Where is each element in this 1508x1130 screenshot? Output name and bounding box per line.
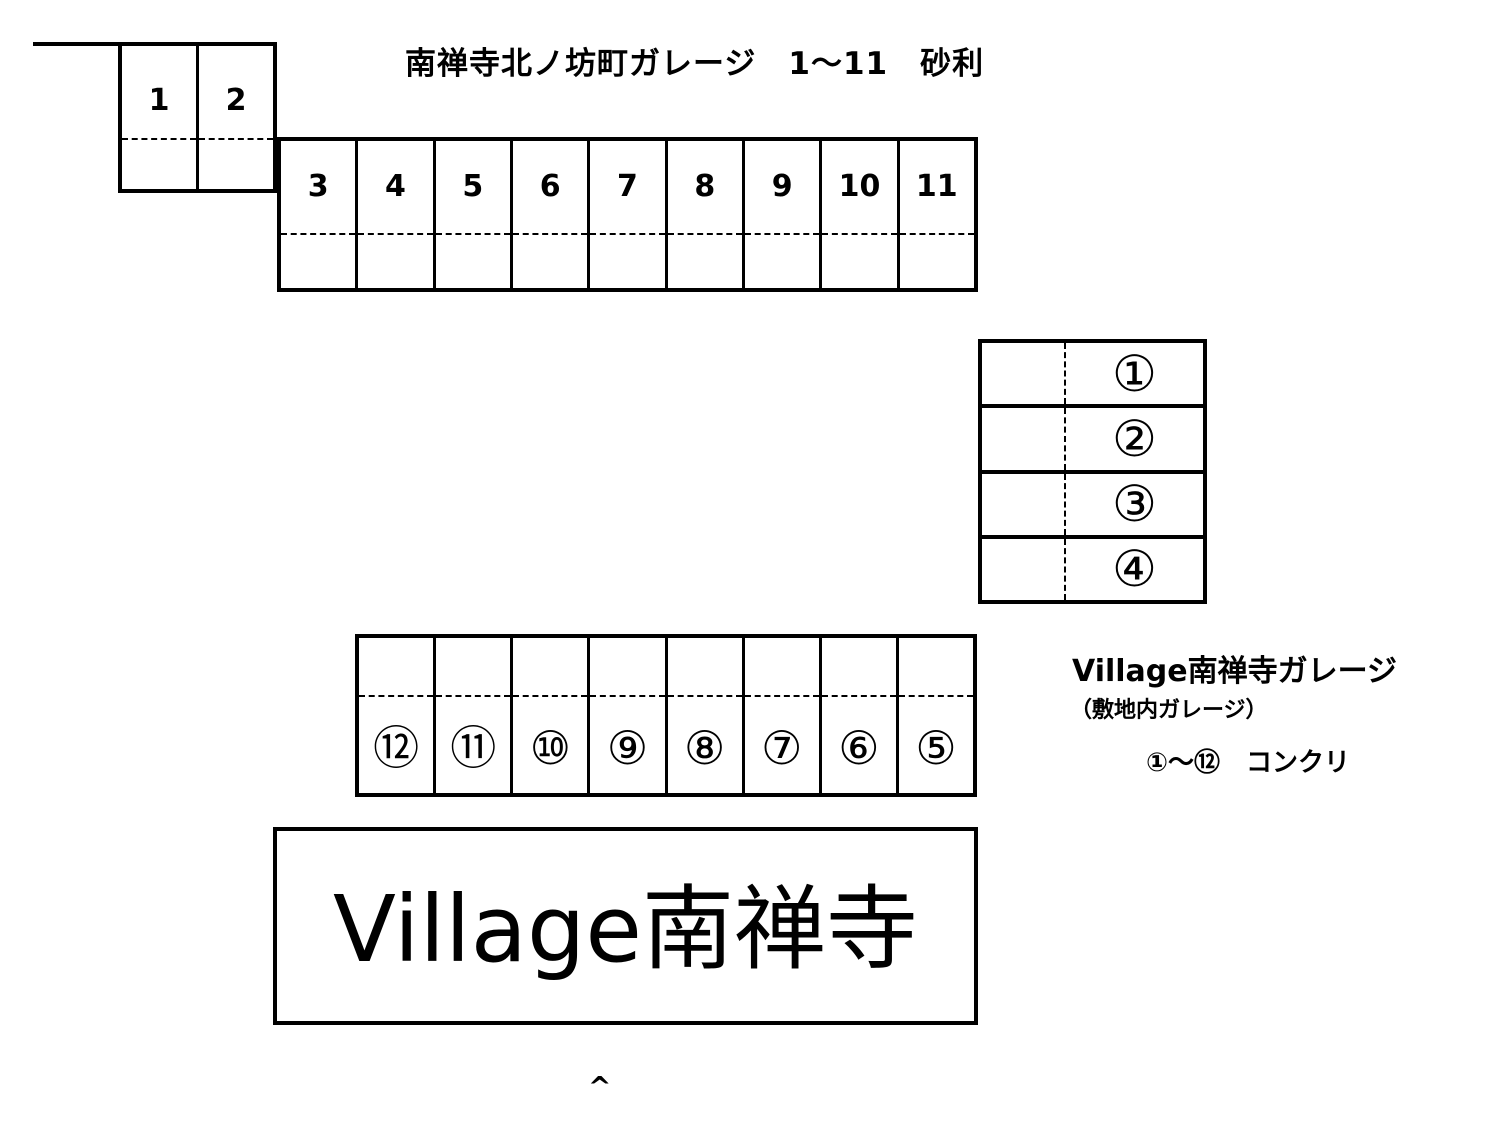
parking-cell-1: 1 <box>122 46 196 189</box>
village-stall-8: ⑧ <box>665 638 742 793</box>
stall-number: ⑦ <box>745 725 819 771</box>
stall-number: ① <box>1066 349 1203 399</box>
stall-number: ④ <box>1066 544 1203 594</box>
north-lot-lower-row: 3 4 5 6 7 8 9 10 <box>277 137 978 292</box>
stall-number: 6 <box>513 172 587 202</box>
stall-number: 5 <box>436 172 510 202</box>
village-stall-6: ⑥ <box>819 638 896 793</box>
stall-divider-dashed <box>359 695 433 697</box>
parking-cell-9: 9 <box>742 141 819 288</box>
stall-divider-dashed <box>899 695 973 697</box>
stall-number: 9 <box>745 172 819 202</box>
stall-number: ⑩ <box>513 725 587 771</box>
village-label-note: ①～⑫ コンクリ <box>1146 742 1350 779</box>
village-label-sub: （敷地内ガレージ） <box>1070 692 1268 724</box>
stall-divider-dashed <box>668 233 742 235</box>
building-sign-box: Village南禅寺 <box>273 827 978 1025</box>
stall-divider-dashed <box>513 695 587 697</box>
stall-divider-dashed <box>745 695 819 697</box>
stall-divider-dashed <box>590 695 664 697</box>
stall-number: 2 <box>199 86 273 116</box>
stall-divider-dashed <box>122 138 196 140</box>
village-stall-7: ⑦ <box>742 638 819 793</box>
stall-divider-dashed <box>436 695 510 697</box>
north-lot-title: 南禅寺北ノ坊町ガレージ 1～11 砂利 <box>405 38 984 83</box>
stall-number: 8 <box>668 172 742 202</box>
village-stall-row-2: ② <box>982 404 1203 469</box>
stall-number: ③ <box>1066 479 1203 529</box>
caret-mark: ^ <box>588 1070 611 1103</box>
village-stall-11: ⑪ <box>433 638 510 793</box>
stall-number: 3 <box>281 172 355 202</box>
stall-divider-dashed <box>745 233 819 235</box>
stall-number: 7 <box>590 172 664 202</box>
parking-cell-2: 2 <box>196 46 273 189</box>
stall-number: ⑫ <box>359 725 433 771</box>
stall-divider-dashed <box>513 233 587 235</box>
stall-number: ⑧ <box>668 725 742 771</box>
stall-number: ⑨ <box>590 725 664 771</box>
parking-cell-4: 4 <box>355 141 432 288</box>
stall-divider-dashed <box>590 233 664 235</box>
village-side-table: ① ② ③ ④ <box>978 339 1207 604</box>
stall-number: 10 <box>822 172 896 202</box>
stall-divider-dashed <box>668 695 742 697</box>
village-stall-9: ⑨ <box>587 638 664 793</box>
stall-number: ⑪ <box>436 725 510 771</box>
parking-cell-7: 7 <box>587 141 664 288</box>
stall-number: ⑥ <box>822 725 896 771</box>
parking-cell-3: 3 <box>281 141 355 288</box>
stall-number: ⑤ <box>899 725 973 771</box>
village-stall-10: ⑩ <box>510 638 587 793</box>
stall-number: 1 <box>122 86 196 116</box>
stall-number: ② <box>1066 414 1203 464</box>
village-stall-row-3: ③ <box>982 470 1203 535</box>
parking-cell-10: 10 <box>819 141 896 288</box>
parking-cell-8: 8 <box>665 141 742 288</box>
parking-cell-6: 6 <box>510 141 587 288</box>
village-stall-row-4: ④ <box>982 535 1203 600</box>
parking-cell-11: 11 <box>897 141 974 288</box>
stall-divider-dashed <box>358 233 432 235</box>
village-label-title: Village南禅寺ガレージ <box>1072 646 1397 690</box>
stall-divider-dashed <box>281 233 355 235</box>
stall-divider-dashed <box>822 695 896 697</box>
village-stall-12: ⑫ <box>359 638 433 793</box>
stall-divider-dashed <box>822 233 896 235</box>
stall-number: 4 <box>358 172 432 202</box>
stall-divider-dashed <box>199 138 273 140</box>
village-garage-row: ⑫ ⑪ ⑩ ⑨ ⑧ ⑦ ⑥ ⑤ <box>355 634 977 797</box>
parking-cell-5: 5 <box>433 141 510 288</box>
stall-number: 11 <box>900 172 974 202</box>
village-stall-5: ⑤ <box>896 638 973 793</box>
stall-divider-dashed <box>900 233 974 235</box>
village-stall-row-1: ① <box>982 343 1203 404</box>
building-sign-text: Village南禅寺 <box>333 884 918 976</box>
north-lot-upper-row: 1 2 <box>118 42 277 193</box>
stall-divider-dashed <box>436 233 510 235</box>
parking-map: 南禅寺北ノ坊町ガレージ 1～11 砂利 1 2 3 4 5 6 <box>0 0 1508 1130</box>
north-lot-boundary-line <box>33 42 118 46</box>
